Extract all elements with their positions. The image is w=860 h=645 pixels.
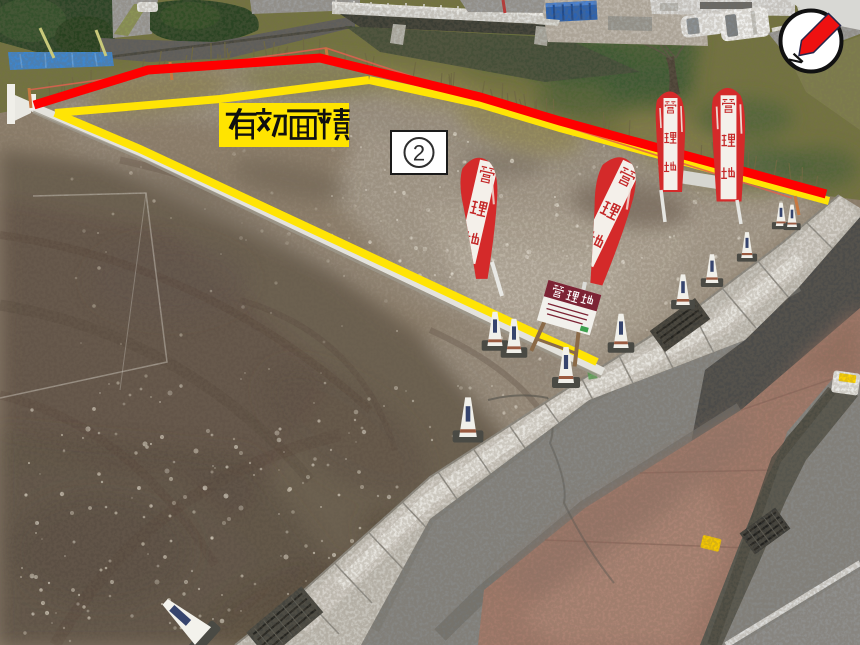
svg-text:2: 2 bbox=[413, 141, 425, 166]
